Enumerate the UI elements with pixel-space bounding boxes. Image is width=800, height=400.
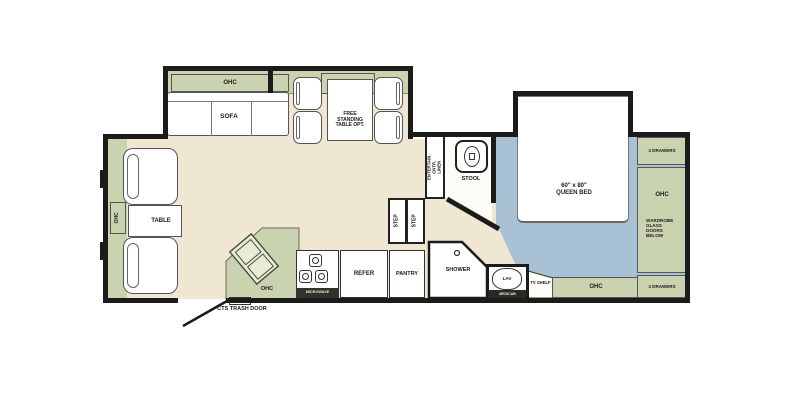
chair-back — [296, 116, 300, 139]
burner-icon — [299, 270, 312, 283]
wardrobe-ohc-label: OHC — [638, 192, 686, 199]
dinette-chair — [374, 77, 403, 110]
burner-icon — [315, 270, 328, 283]
burner-icon — [309, 254, 322, 267]
entry-step: STEP — [388, 198, 407, 244]
sofa: SOFA — [167, 92, 289, 136]
toilet — [455, 140, 488, 173]
wall — [103, 134, 108, 303]
rv-floorplan: OHC OHC OHC OHC 3 DRAWERS OHC WARDROBE G… — [0, 0, 800, 400]
chair-back — [296, 82, 300, 105]
drawers-bottom-label: 3 DRAWERS — [648, 284, 675, 289]
shower-label: SHOWER — [431, 267, 485, 273]
queen-bed-label: 60" x 80" QUEEN BED — [551, 183, 597, 196]
chair-back — [127, 243, 139, 288]
wall — [408, 132, 518, 137]
front-chair — [123, 148, 178, 205]
drawers-bottom-cabinet: 3 DRAWERS — [637, 275, 687, 298]
wall — [628, 132, 690, 137]
bedroom-ohc-label: OHC — [589, 284, 602, 291]
dinette-chair — [293, 77, 322, 110]
window-tick — [100, 242, 104, 260]
chair-back — [127, 154, 139, 199]
stool-label: STOOL — [444, 176, 498, 182]
wall — [628, 91, 633, 136]
dinette-chair — [374, 111, 403, 144]
counter-ohc-label: OHC — [252, 286, 282, 292]
tv-shelf-label: TV SHELF — [530, 281, 551, 286]
wall — [685, 132, 690, 303]
entertainment-center: ENTERTAIN. CNTR. LINEN — [425, 135, 445, 199]
wall — [513, 91, 518, 136]
wall — [226, 298, 690, 303]
front-ohc-cabinet: OHC — [110, 202, 126, 234]
front-chair — [123, 237, 178, 294]
medicab-label: MEDICAB — [499, 292, 516, 296]
wall — [163, 66, 413, 71]
wall — [103, 134, 167, 139]
drawers-top-label: 3 DRAWERS — [648, 148, 675, 153]
entry-step: STEP — [406, 198, 425, 244]
lav-label: LAV — [503, 276, 512, 281]
pantry-label: PANTRY — [396, 271, 418, 277]
microwave-label: MICROWAVE — [306, 290, 330, 294]
entry-door-label: CTS TRASH DOOR — [197, 306, 287, 312]
front-ohc-label: OHC — [115, 212, 121, 223]
queen-bed: 60" x 80" QUEEN BED — [517, 96, 629, 223]
wardrobe-cabinet: OHC WARDROBE GLASS DOORS BELOW — [637, 167, 687, 273]
toilet-flush-icon — [469, 153, 475, 160]
lav-basin: LAV — [492, 268, 522, 290]
wall — [408, 66, 413, 139]
wardrobe-label: WARDROBE GLASS DOORS BELOW — [646, 218, 676, 239]
refrigerator: REFER — [340, 250, 388, 298]
medicab-band: MEDICAB — [489, 290, 526, 298]
lavatory: LAV MEDICAB — [486, 264, 529, 301]
dinette-table: FREE STANDING TABLE OPT. — [327, 79, 373, 141]
chair-back — [396, 116, 400, 139]
wall — [513, 91, 633, 96]
front-table: TABLE — [128, 205, 182, 237]
wall — [163, 66, 168, 139]
wall — [491, 135, 496, 203]
dinette-chair — [293, 111, 322, 144]
microwave-band: MICROWAVE — [297, 288, 338, 297]
pantry: PANTRY — [389, 250, 425, 298]
sofa-ohc-label: OHC — [223, 80, 236, 87]
wall — [268, 69, 273, 93]
refer-label: REFER — [354, 271, 374, 278]
step-label: STEP — [395, 214, 401, 227]
step-label: STEP — [413, 214, 419, 227]
sofa-label: SOFA — [193, 113, 265, 120]
front-table-label: TABLE — [141, 218, 181, 225]
sofa-back — [168, 93, 288, 102]
window-tick — [100, 170, 104, 188]
dinette-table-label: FREE STANDING TABLE OPT. — [333, 112, 367, 129]
drawers-top-cabinet: 3 DRAWERS — [637, 137, 687, 165]
bedroom-ohc-cabinet: OHC — [552, 277, 640, 298]
chair-back — [396, 82, 400, 105]
stove: MICROWAVE — [296, 250, 339, 298]
wall — [103, 298, 178, 303]
entry-door-swing — [183, 301, 227, 326]
entertainment-label: ENTERTAIN. CNTR. LINEN — [428, 154, 442, 179]
